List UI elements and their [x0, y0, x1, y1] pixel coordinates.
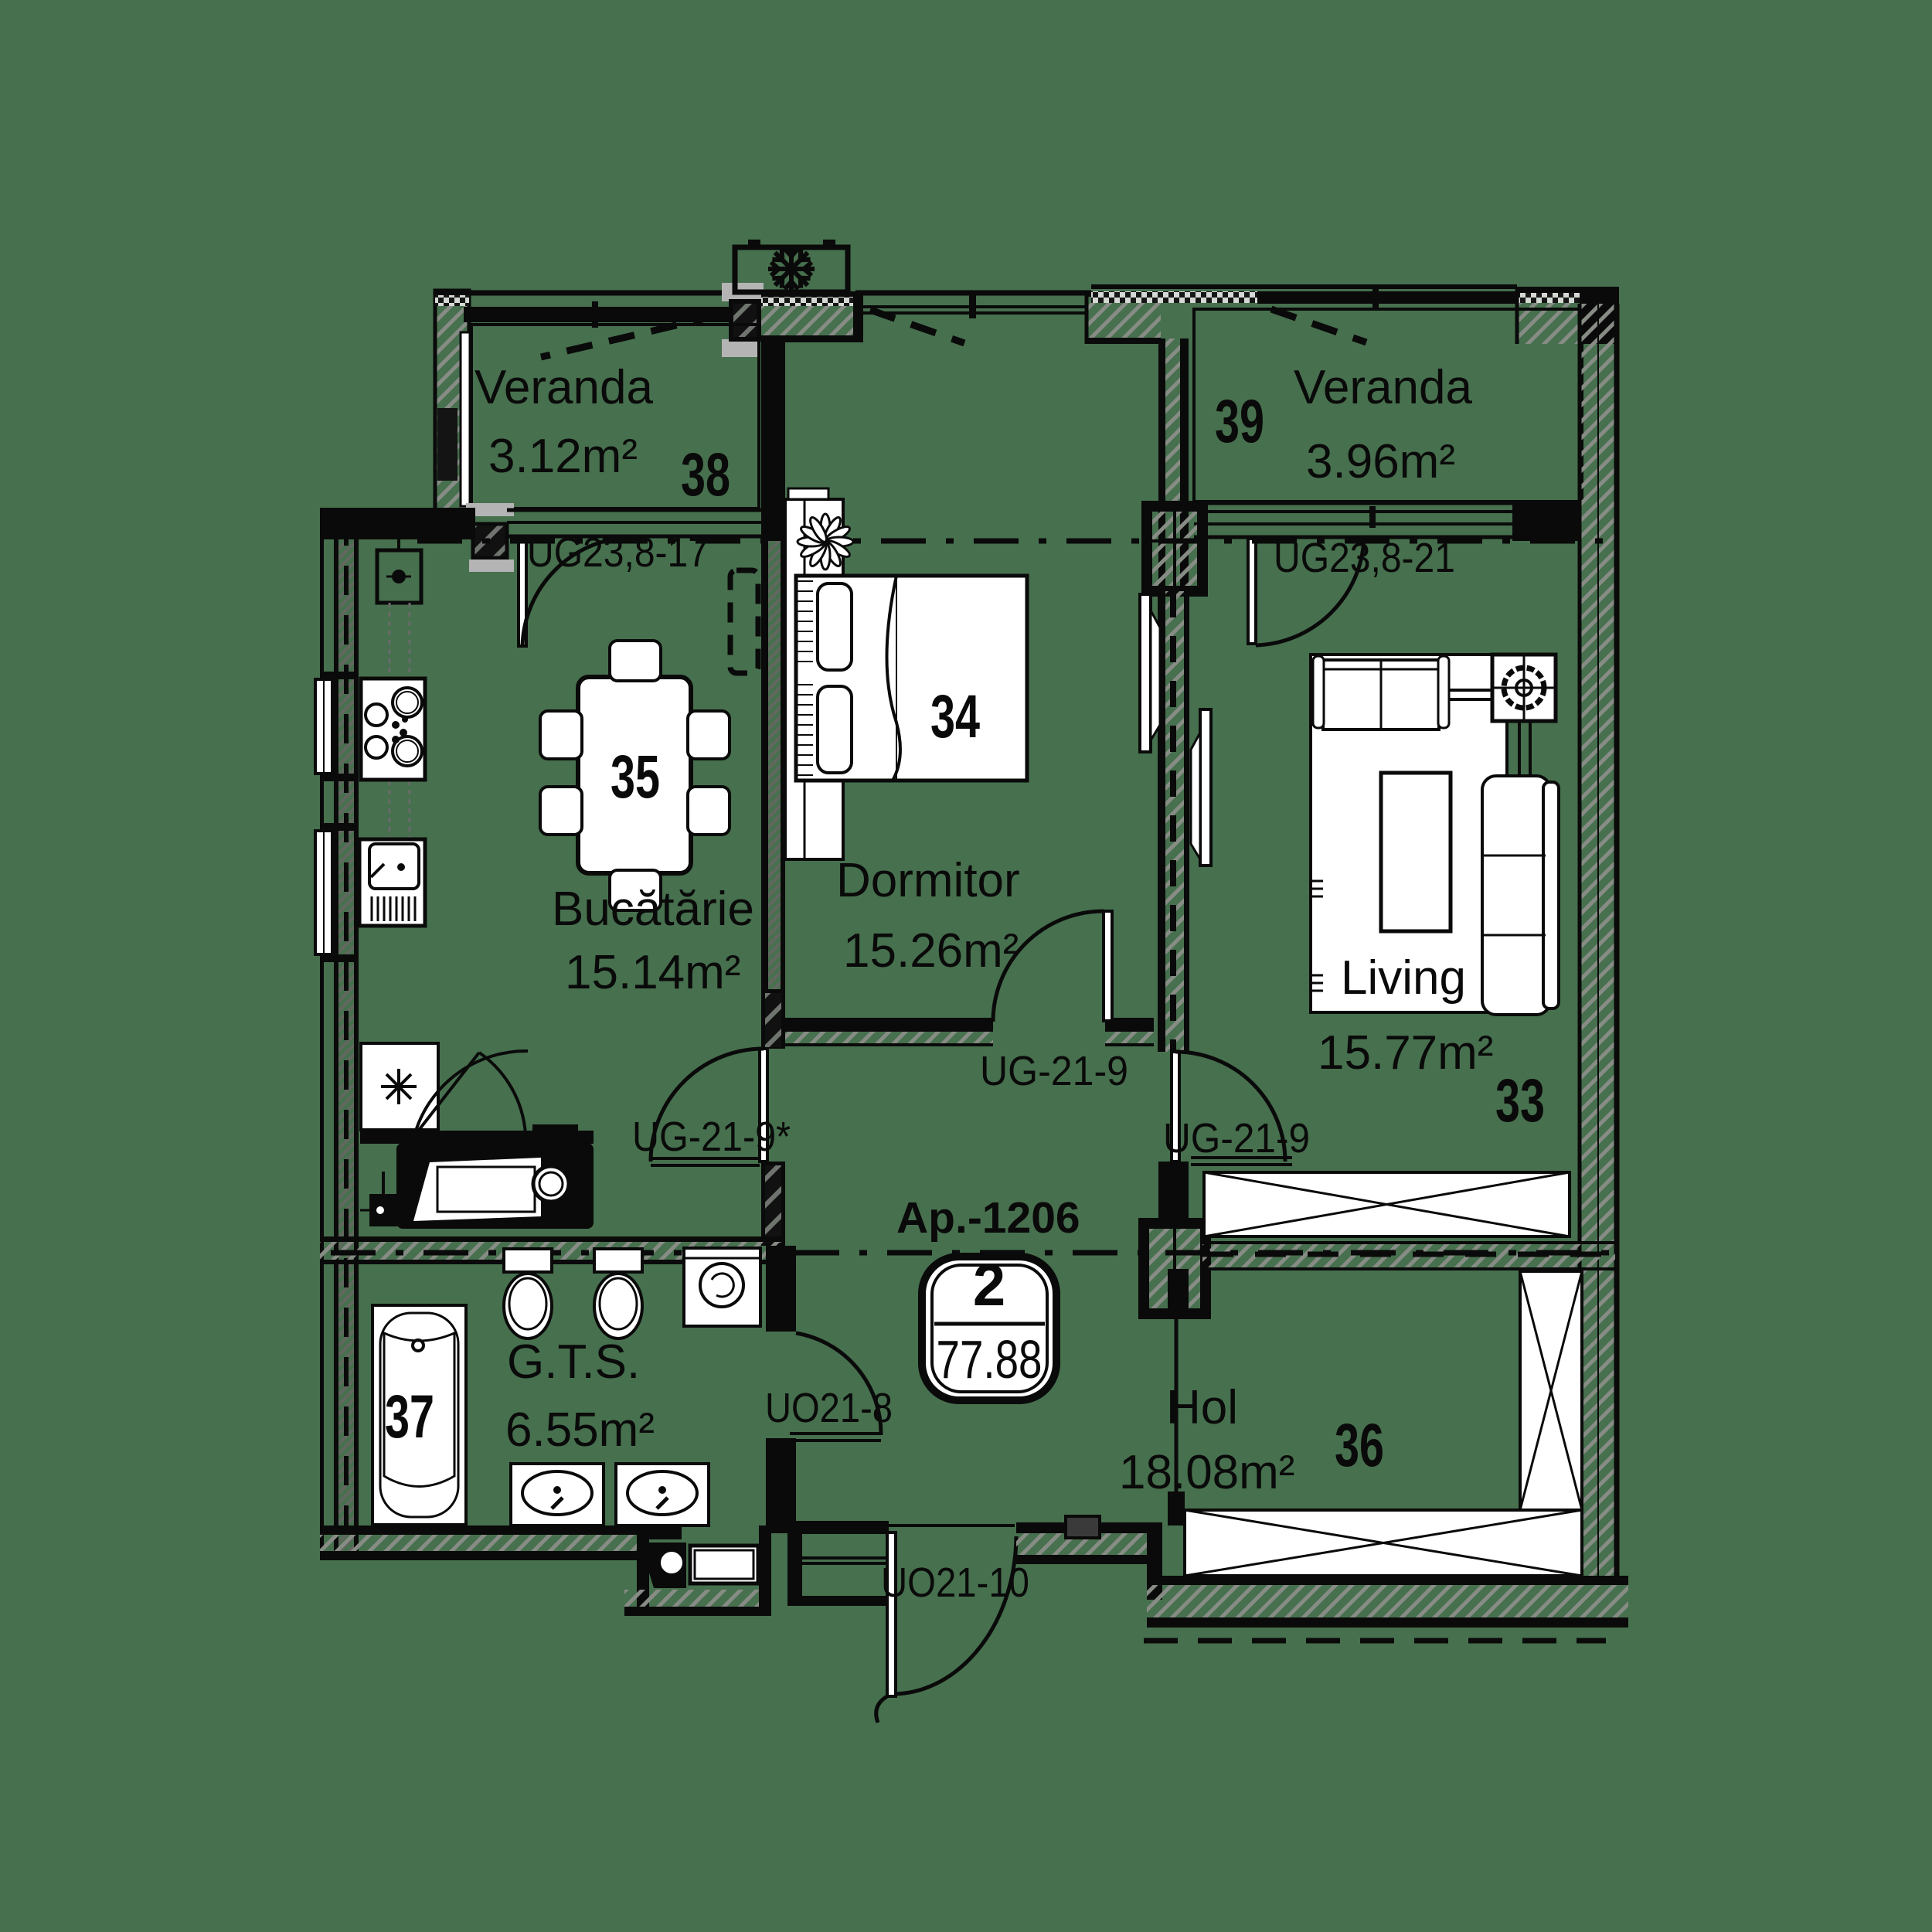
svg-text:36: 36: [1335, 1410, 1384, 1479]
svg-text:UG-21-9: UG-21-9: [1163, 1115, 1310, 1162]
svg-text:Living: Living: [1341, 951, 1466, 1005]
svg-text:G.T.S.: G.T.S.: [507, 1335, 640, 1389]
svg-text:39: 39: [1215, 386, 1264, 455]
svg-text:6.55m²: 6.55m²: [505, 1403, 655, 1457]
svg-text:UO21-8: UO21-8: [765, 1385, 893, 1431]
svg-text:Ap.-1206: Ap.-1206: [896, 1193, 1080, 1243]
svg-text:UO21-10: UO21-10: [881, 1560, 1029, 1606]
svg-text:UG-21-9*: UG-21-9*: [632, 1114, 791, 1160]
svg-text:Hol: Hol: [1166, 1381, 1238, 1434]
svg-text:UG23,8-21: UG23,8-21: [1274, 535, 1455, 581]
svg-text:15.14m²: 15.14m²: [565, 946, 740, 999]
svg-text:33: 33: [1495, 1066, 1545, 1134]
svg-text:2: 2: [973, 1253, 1005, 1318]
svg-text:37: 37: [385, 1382, 434, 1451]
svg-text:15.26m²: 15.26m²: [843, 924, 1019, 978]
svg-text:3.96m²: 3.96m²: [1306, 435, 1455, 488]
svg-text:3.12m²: 3.12m²: [488, 430, 638, 483]
svg-text:18.08m²: 18.08m²: [1119, 1446, 1294, 1499]
svg-text:Bucătărie: Bucătărie: [552, 883, 754, 936]
svg-text:38: 38: [681, 440, 730, 509]
svg-text:Dormitor: Dormitor: [836, 854, 1020, 907]
svg-text:35: 35: [611, 742, 660, 811]
svg-text:UG23,8-17: UG23,8-17: [527, 529, 709, 576]
svg-text:Veranda: Veranda: [474, 361, 654, 414]
svg-text:Veranda: Veranda: [1294, 361, 1473, 414]
svg-text:15.77m²: 15.77m²: [1318, 1026, 1493, 1080]
svg-text:77.88: 77.88: [937, 1329, 1043, 1389]
svg-text:34: 34: [930, 682, 980, 750]
svg-text:UG-21-9: UG-21-9: [980, 1048, 1128, 1094]
